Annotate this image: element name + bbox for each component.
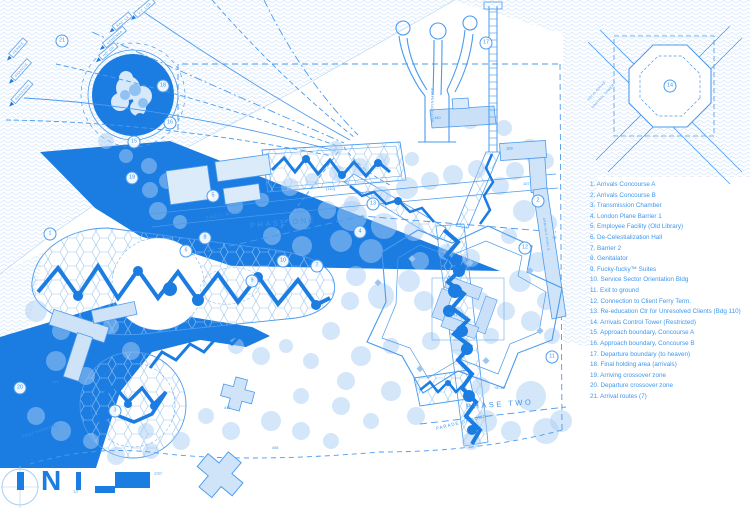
map-label: PHASE ONE (250, 215, 317, 230)
map-marker-1: 1 (44, 228, 57, 241)
map-label: PHASE TWO (466, 397, 534, 411)
route-label-text: V.T. LOR (133, 0, 156, 18)
map-marker-2: 2 (532, 195, 545, 208)
map-label: 140 (434, 115, 441, 120)
map-label: SUSPENSION LINE (430, 88, 434, 123)
legend-item: 14. Arrivals Control Tower (Restricted) (590, 318, 750, 329)
map-marker-16: 16 (164, 117, 177, 130)
map-label: 107 (523, 181, 530, 186)
map-label: (110) (326, 186, 335, 191)
legend-item: 4. London Plane Barrier 1 (590, 212, 750, 223)
map-label: 408 (272, 446, 278, 450)
map-marker-4: 4 (354, 226, 367, 239)
map-label: +5' (552, 236, 557, 240)
route-label-text: FERRIS (8, 37, 28, 58)
legend-item: 9. Fucky-fucky™ Suites (590, 265, 750, 276)
legend-item: 3. Transmission Chamber (590, 201, 750, 212)
legend-item: 12. Connection to Client Ferry Term. (590, 297, 750, 308)
legend-item: 21. Arrival routes (7) (590, 392, 750, 403)
route-label: V.T. LOR (128, 0, 155, 22)
map-label: POST HOSPITAL (21, 422, 59, 438)
legend-item: 8. Genitalator (590, 254, 750, 265)
route-label-text: FRANCIS (10, 58, 32, 81)
legend-item: 19. Arriving crossover zone (590, 371, 750, 382)
north-label: N (41, 468, 61, 494)
scale-min-label: 10' (73, 489, 79, 494)
map-label: 410 (224, 406, 230, 410)
scale-max-label: 200' (154, 471, 162, 476)
map-label: ANZIO ROAD (206, 209, 242, 220)
map-marker-21: 21 (56, 35, 69, 48)
map-label: +5'-10" (494, 386, 506, 390)
legend: 1. Arrivals Concourse A2. Arrivals Conco… (590, 180, 750, 402)
map-marker-14: 14 (664, 80, 677, 93)
legend-item: 5. Employee Facility (Old Library) (590, 222, 750, 233)
map-marker-19: 19 (126, 172, 139, 185)
map-marker-18: 18 (157, 80, 170, 93)
legend-item: 16. Approach boundary, Concourse B (590, 339, 750, 350)
map-marker-13: 13 (367, 198, 380, 211)
legend-item: 1. Arrivals Concourse A (590, 180, 750, 191)
legend-item: 11. Exit to ground (590, 286, 750, 297)
map-marker-11: 11 (546, 351, 559, 364)
legend-item: 15. Approach boundary, Concourse A (590, 328, 750, 339)
map-label: CONTROL TOWER (591, 83, 616, 109)
map-label: FORT JAY (445, 310, 468, 320)
legend-item: 20. Departure crossover zone (590, 381, 750, 392)
map-marker-17: 17 (480, 37, 493, 50)
map-label: ARRIVALS CONC B (542, 218, 551, 251)
map-label: PARADE GROUND (435, 413, 487, 431)
legend-item: 7. Barrier 2 (590, 244, 750, 255)
map-marker-10: 10 (277, 255, 290, 268)
legend-item: 2. Arrivals Concourse B (590, 191, 750, 202)
legend-item: 6. De-Celestialization Hall (590, 233, 750, 244)
map-marker-9: 9 (246, 275, 259, 288)
map-marker-12: 12 (519, 242, 532, 255)
map-label: 109 (506, 146, 513, 151)
map-marker-7: 7 (311, 260, 324, 273)
legend-item: 17. Departure boundary (to heaven) (590, 350, 750, 361)
map-marker-8: 8 (199, 232, 212, 245)
map-marker-5: 5 (207, 190, 220, 203)
map-marker-6: 6 (180, 245, 193, 258)
legend-item: 10. Service Sector Orientation Bldg (590, 275, 750, 286)
map-marker-15: 15 (128, 136, 141, 149)
map-marker-20: 20 (14, 382, 27, 395)
legend-item: 13. Re-education Ctr for Unresolved Clie… (590, 307, 750, 318)
map-label: 415 (52, 380, 58, 384)
legend-item: 18. Final holding area (arrivals) (590, 360, 750, 371)
map-marker-3: 3 (109, 405, 122, 418)
site-plan-canvas: 123456789101112131415161718192021ANZIO R… (0, 0, 750, 512)
